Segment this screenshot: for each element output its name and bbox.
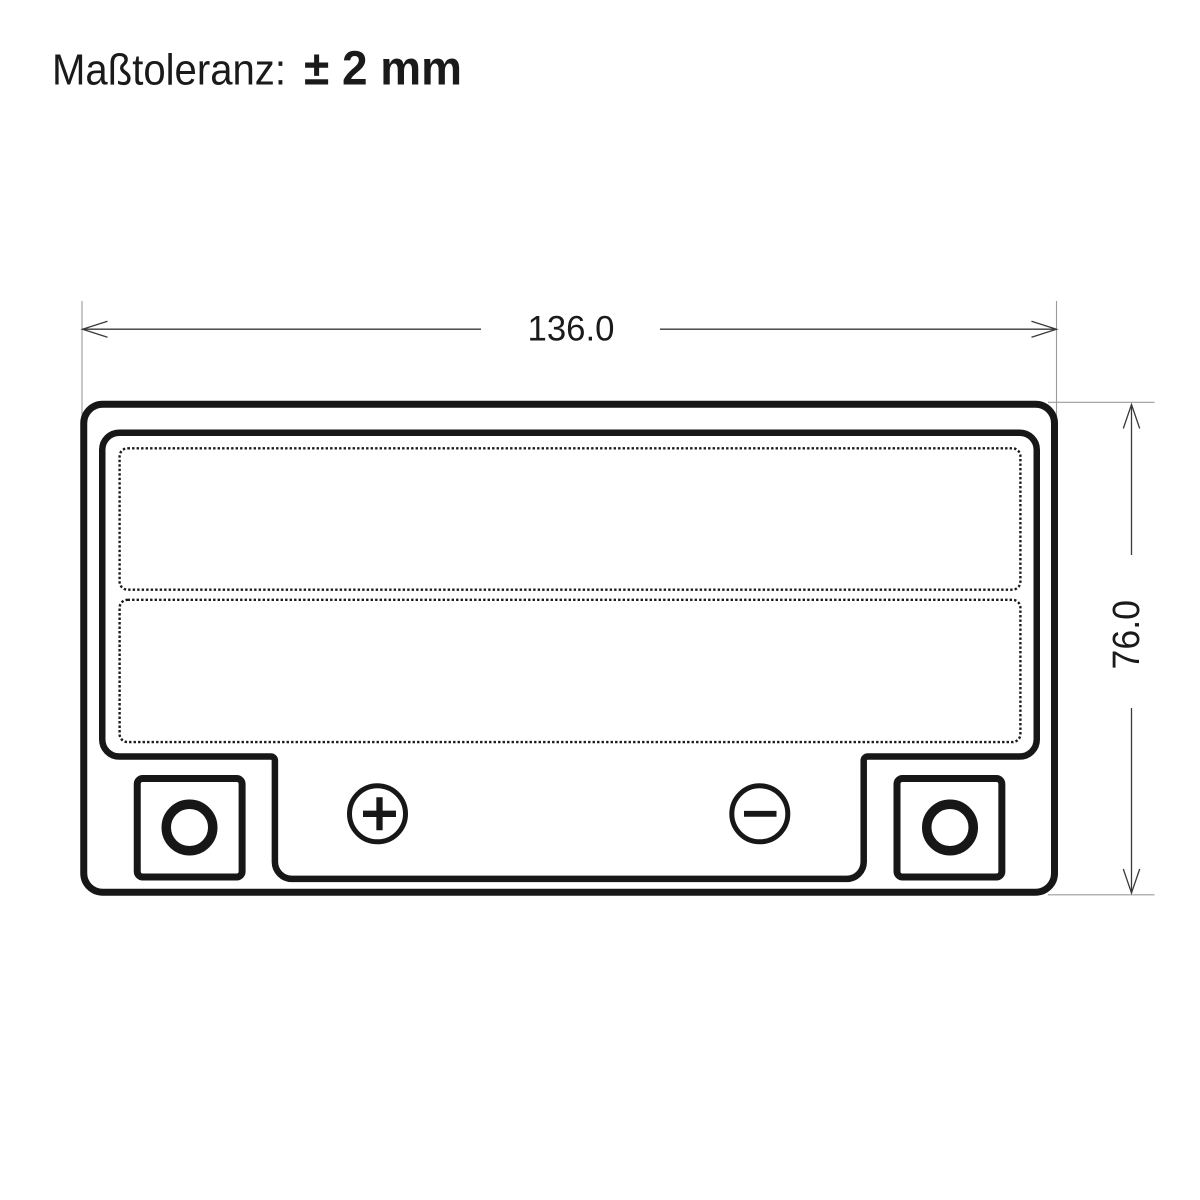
svg-text:136.0: 136.0 [528,310,615,349]
svg-text:Maßtoleranz:: Maßtoleranz: [52,46,286,95]
svg-text:± 2 mm: ± 2 mm [304,43,462,96]
svg-text:76.0: 76.0 [1106,600,1148,670]
